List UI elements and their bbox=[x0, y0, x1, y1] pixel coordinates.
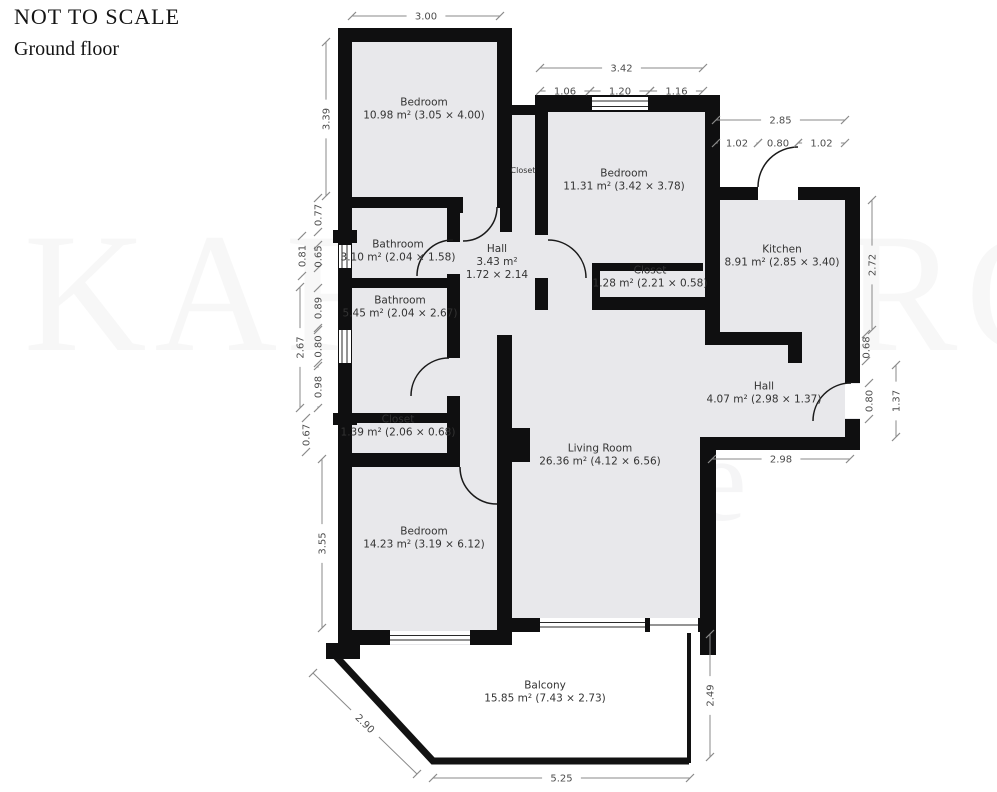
dimension-label: 3.55 bbox=[318, 532, 329, 554]
wall-segment bbox=[510, 428, 530, 462]
room-label-balcony: Balcony15.85 m² (7.43 × 2.73) bbox=[484, 680, 606, 705]
floor-plan-svg: KARTSBERG Estate bbox=[0, 0, 997, 792]
dimension-label: 2.49 bbox=[706, 684, 717, 706]
wall-segment bbox=[447, 202, 460, 242]
room-label-text: 1.28 m² (2.21 × 0.58) bbox=[593, 278, 708, 290]
wall-segment bbox=[338, 197, 463, 208]
dimension-label: 1.37 bbox=[892, 390, 903, 412]
wall-segment bbox=[497, 335, 512, 632]
dimension-label: 3.00 bbox=[415, 12, 437, 23]
room-label-text: Bedroom bbox=[400, 97, 448, 109]
wall-segment bbox=[333, 230, 357, 243]
room-label-text: Closet bbox=[511, 166, 536, 175]
room-label-text: Bathroom bbox=[372, 239, 424, 251]
dimension-label: 2.98 bbox=[770, 455, 792, 466]
room-label-text: Living Room bbox=[568, 443, 632, 455]
room-label-text: 1.39 m² (2.06 × 0.68) bbox=[341, 427, 456, 439]
room-label-text: 26.36 m² (4.12 × 6.56) bbox=[539, 456, 661, 468]
dimension-label: 0.80 bbox=[767, 139, 789, 150]
window-glazing bbox=[758, 187, 798, 200]
dimension-label: 3.39 bbox=[322, 108, 333, 130]
dimension-label: 1.20 bbox=[609, 87, 631, 98]
wall-segment bbox=[497, 618, 540, 632]
dimension-label: 0.67 bbox=[302, 424, 313, 446]
room-label-text: Balcony bbox=[524, 680, 566, 692]
dimension-label: 0.98 bbox=[314, 376, 325, 398]
wall-segment bbox=[700, 437, 860, 450]
dimension-label: 2.67 bbox=[296, 336, 307, 358]
room-label-text: Hall bbox=[754, 381, 774, 393]
dimension-label: 2.72 bbox=[868, 254, 879, 276]
window-glazing bbox=[390, 631, 470, 644]
wall-segment bbox=[645, 618, 650, 632]
dimension-label: 2.85 bbox=[769, 116, 791, 127]
room-label-text: 14.23 m² (3.19 × 6.12) bbox=[363, 539, 485, 551]
room-label-text: 10.98 m² (3.05 × 4.00) bbox=[363, 110, 485, 122]
room-label-text: 11.31 m² (3.42 × 3.78) bbox=[563, 181, 685, 193]
room-label-text: 5.45 m² (2.04 × 2.67) bbox=[343, 308, 458, 320]
door-swing-arc bbox=[758, 147, 798, 187]
room-label-closet-strip: Closet bbox=[511, 166, 536, 175]
room-label-text: 1.72 × 2.14 bbox=[466, 269, 529, 281]
dimension-label: 1.02 bbox=[810, 139, 832, 150]
dimension-label: 0.80 bbox=[865, 390, 876, 412]
dimension-label: 3.42 bbox=[610, 64, 632, 75]
dimension-label: 1.02 bbox=[726, 139, 748, 150]
room-label-text: 3.10 m² (2.04 × 1.58) bbox=[341, 252, 456, 264]
dimension-label: 1.16 bbox=[665, 87, 687, 98]
wall-segment bbox=[705, 332, 802, 345]
wall-segment bbox=[470, 630, 512, 645]
room-label-text: 8.91 m² (2.85 × 3.40) bbox=[725, 257, 840, 269]
wall-segment bbox=[710, 187, 758, 200]
dimension-label: 2.90 bbox=[352, 713, 376, 736]
wall-segment bbox=[338, 28, 512, 42]
window-glazing bbox=[540, 618, 645, 632]
wall-segment bbox=[535, 95, 548, 235]
wall-segment bbox=[338, 453, 460, 467]
dimension-label: 0.80 bbox=[314, 335, 325, 357]
room-label-text: Hall bbox=[487, 243, 507, 255]
window-glazing bbox=[339, 330, 351, 363]
wall-segment bbox=[788, 332, 802, 363]
wall-segment bbox=[326, 643, 360, 659]
room-label-text: 4.07 m² (2.98 × 1.37) bbox=[707, 394, 822, 406]
wall-segment bbox=[592, 297, 710, 310]
room-label-text: Closet bbox=[382, 414, 415, 426]
wall-segment bbox=[338, 278, 460, 288]
room-label-text: Kitchen bbox=[762, 244, 801, 256]
dimension-label: 0.77 bbox=[314, 204, 325, 226]
dimension-label: 0.68 bbox=[862, 336, 873, 358]
dimension-label: 0.65 bbox=[314, 245, 325, 267]
dimension-label: 1.06 bbox=[554, 87, 576, 98]
window-glazing bbox=[592, 97, 648, 110]
room-label-text: Bathroom bbox=[374, 295, 426, 307]
room-label-text: Bedroom bbox=[400, 526, 448, 538]
dimension-label: 0.81 bbox=[298, 245, 309, 267]
dimension-label: 0.89 bbox=[314, 297, 325, 319]
room-label-text: Bedroom bbox=[600, 168, 648, 180]
wall-segment bbox=[333, 413, 357, 425]
floor-plan-page: NOT TO SCALE Ground floor KARTSBERG Esta… bbox=[0, 0, 997, 792]
room-label-text: 15.85 m² (7.43 × 2.73) bbox=[484, 693, 606, 705]
room-label-text: 3.43 m² bbox=[476, 256, 517, 268]
wall-segment bbox=[338, 630, 390, 645]
wall-segment bbox=[535, 278, 548, 310]
dimension-label: 5.25 bbox=[550, 774, 572, 785]
window-glazing bbox=[845, 384, 860, 418]
room-label-text: Closet bbox=[634, 265, 667, 277]
wall-segment bbox=[845, 187, 860, 383]
wall-segment bbox=[447, 288, 460, 358]
